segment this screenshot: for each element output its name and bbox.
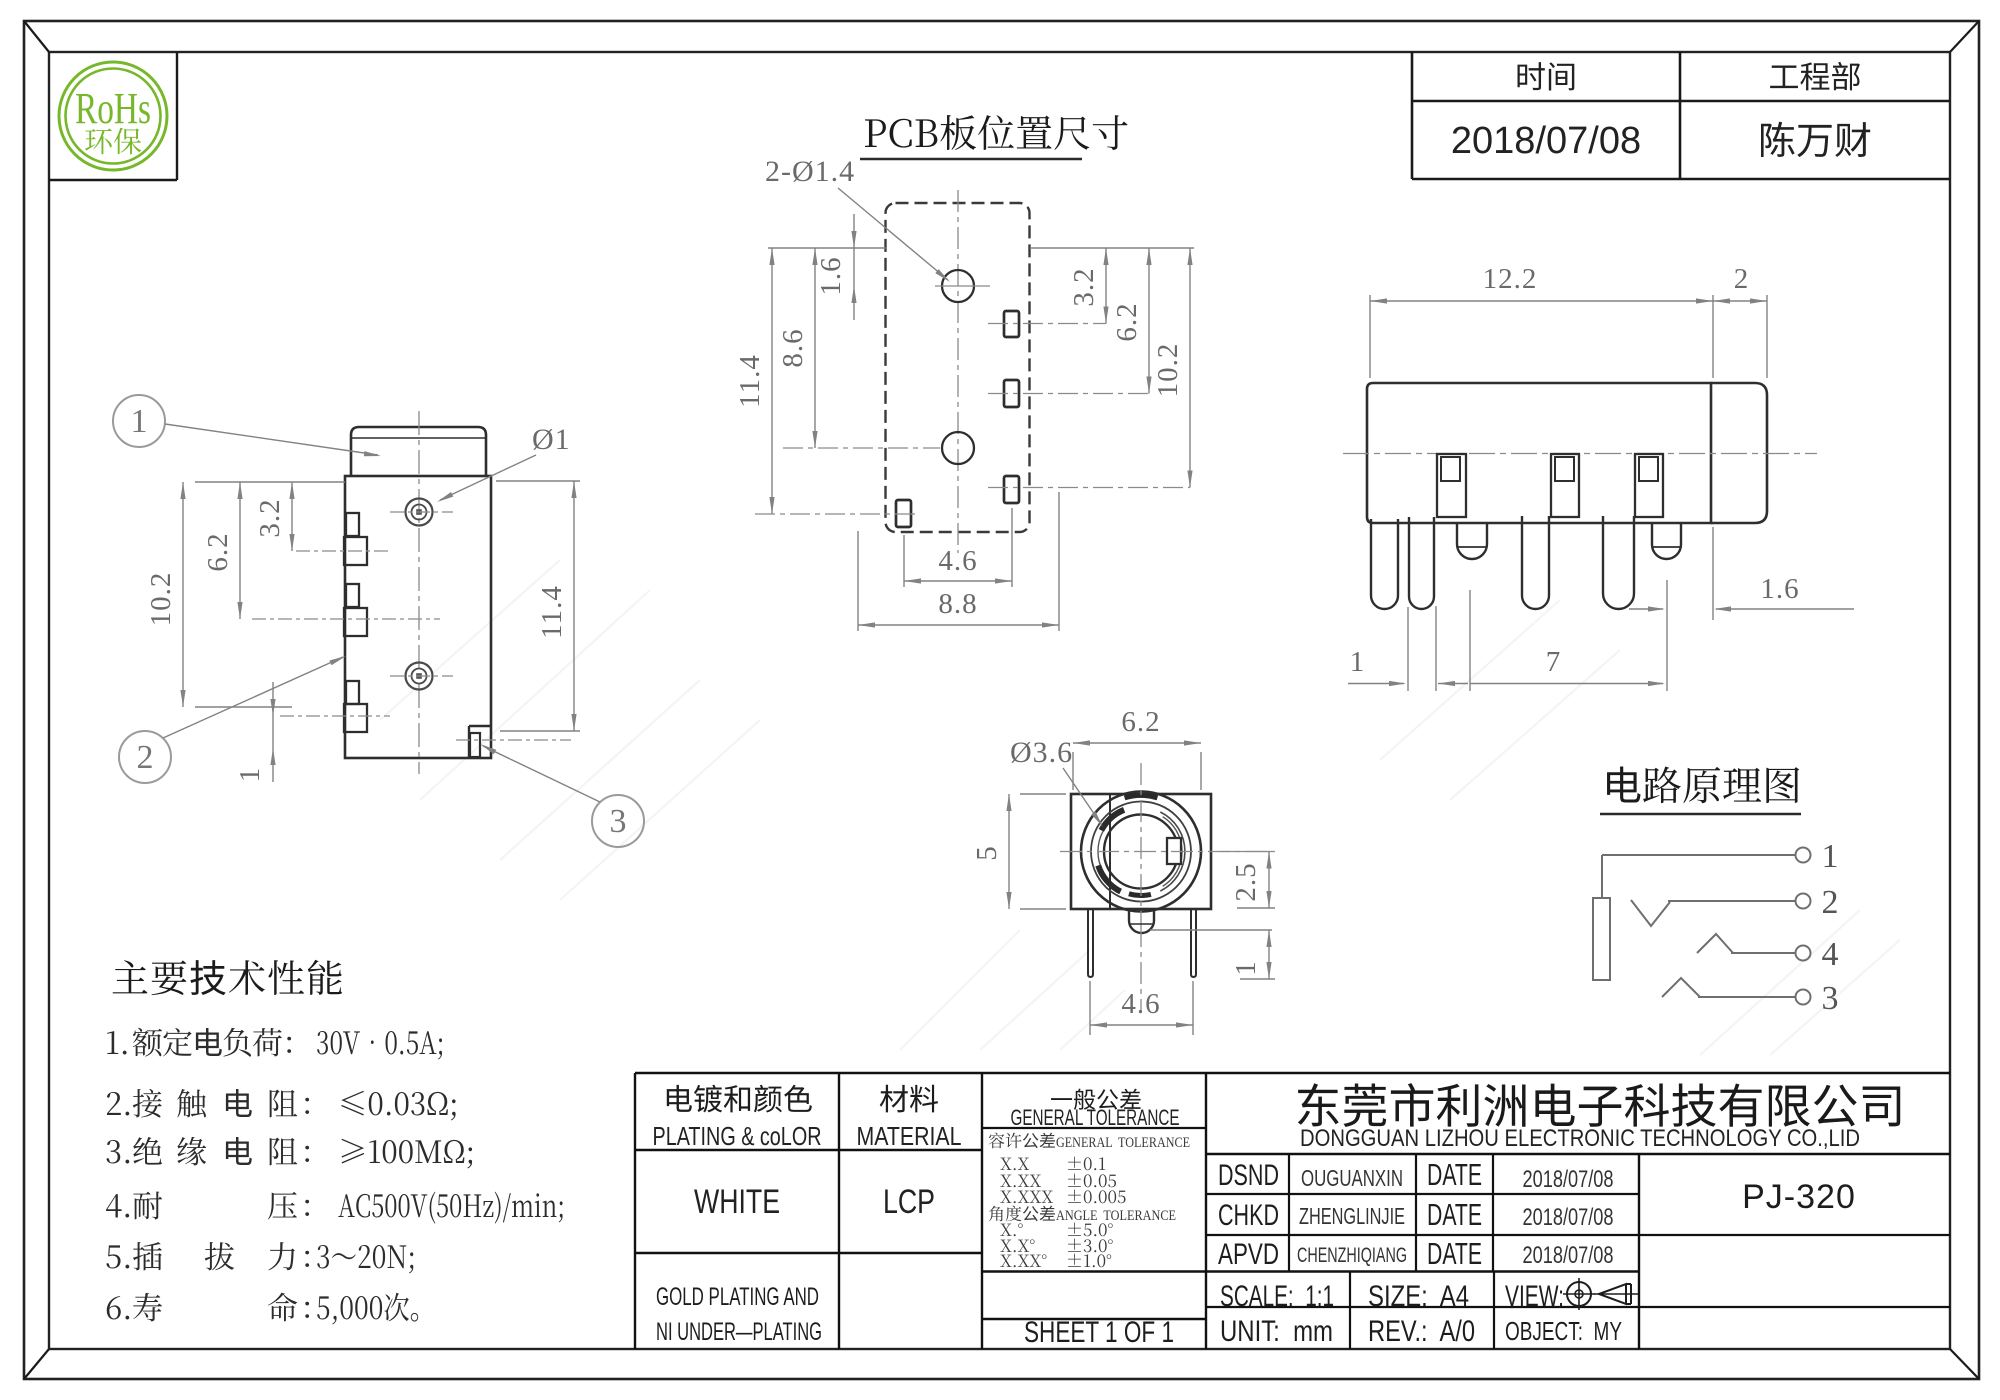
svg-text:2018/07/08: 2018/07/08 <box>1451 120 1641 162</box>
svg-text:Ø1: Ø1 <box>532 423 571 456</box>
svg-text:MATERIAL: MATERIAL <box>857 1121 962 1151</box>
svg-text:10.2: 10.2 <box>1152 343 1184 398</box>
svg-text:3: 3 <box>610 803 627 840</box>
svg-text:10.2: 10.2 <box>145 572 177 627</box>
svg-text:APVD: APVD <box>1218 1238 1279 1271</box>
svg-text:GENERAL TOLERANCE: GENERAL TOLERANCE <box>1056 1135 1190 1151</box>
svg-text:3.2: 3.2 <box>254 498 286 537</box>
svg-text:11.4: 11.4 <box>734 354 766 408</box>
svg-text:1: 1 <box>1350 646 1365 678</box>
svg-text:1: 1 <box>1230 960 1262 976</box>
svg-text:1: 1 <box>1822 838 1839 875</box>
svg-text:GOLD PLATING AND: GOLD PLATING AND <box>656 1283 819 1311</box>
svg-text:SCALE: 1:1: SCALE: 1:1 <box>1220 1280 1334 1313</box>
svg-text:DATE: DATE <box>1427 1157 1482 1192</box>
svg-text:CHKD: CHKD <box>1218 1199 1279 1232</box>
svg-text:7: 7 <box>1546 646 1561 678</box>
svg-text:3.2: 3.2 <box>1068 267 1100 306</box>
svg-text:1.6: 1.6 <box>1760 573 1799 605</box>
svg-text:NI UNDER—PLATING: NI UNDER—PLATING <box>656 1318 822 1346</box>
svg-text:ANGLE TOLERANCE: ANGLE TOLERANCE <box>1056 1208 1176 1224</box>
svg-text:12.2: 12.2 <box>1483 263 1538 295</box>
svg-text:PLATING & coLOR: PLATING & coLOR <box>653 1121 822 1151</box>
svg-text:8.6: 8.6 <box>777 328 809 367</box>
svg-text:1: 1 <box>131 403 148 440</box>
svg-text:8.8: 8.8 <box>938 588 977 620</box>
svg-text:6.2: 6.2 <box>202 532 234 571</box>
svg-text:2-Ø1.4: 2-Ø1.4 <box>765 155 855 188</box>
svg-text:2: 2 <box>1734 263 1749 295</box>
svg-text:GENERAL TOLERANCE: GENERAL TOLERANCE <box>1011 1105 1180 1130</box>
svg-text:SHEET 1 OF 1: SHEET 1 OF 1 <box>1024 1316 1174 1349</box>
svg-text:11.4: 11.4 <box>536 585 568 639</box>
svg-text:OBJECT: MY: OBJECT: MY <box>1505 1316 1622 1346</box>
svg-text:WHITE: WHITE <box>694 1183 780 1221</box>
svg-text:RoHs: RoHs <box>75 84 151 133</box>
svg-text:2.5: 2.5 <box>1230 862 1262 901</box>
svg-text:4.6: 4.6 <box>1121 988 1160 1020</box>
svg-text:4.6: 4.6 <box>938 545 977 577</box>
svg-text:DATE: DATE <box>1427 1197 1482 1232</box>
svg-text:REV.: A/0: REV.: A/0 <box>1368 1315 1475 1348</box>
svg-text:2018/07/08: 2018/07/08 <box>1523 1242 1614 1269</box>
svg-text:ZHENGLINJIE: ZHENGLINJIE <box>1299 1203 1405 1229</box>
svg-text:DSND: DSND <box>1218 1159 1279 1192</box>
svg-text:2: 2 <box>1822 884 1839 921</box>
svg-text:6.2: 6.2 <box>1111 302 1143 341</box>
svg-text:4: 4 <box>1822 936 1839 973</box>
svg-text:DATE: DATE <box>1427 1236 1482 1271</box>
svg-text:Ø3.6: Ø3.6 <box>1010 736 1073 769</box>
svg-text:SIZE: A4: SIZE: A4 <box>1368 1280 1469 1313</box>
svg-text:DONGGUAN LIZHOU ELECTRONIC TEC: DONGGUAN LIZHOU ELECTRONIC TECHNOLOGY CO… <box>1300 1125 1860 1152</box>
svg-text:PJ-320: PJ-320 <box>1742 1178 1856 1216</box>
svg-text:VIEW:: VIEW: <box>1505 1280 1564 1313</box>
svg-text:5: 5 <box>971 845 1003 861</box>
svg-text:2018/07/08: 2018/07/08 <box>1523 1166 1614 1193</box>
svg-text:2: 2 <box>137 739 154 776</box>
svg-text:LCP: LCP <box>883 1183 935 1221</box>
svg-text:UNIT: mm: UNIT: mm <box>1220 1315 1333 1348</box>
svg-text:OUGUANXIN: OUGUANXIN <box>1301 1165 1403 1191</box>
svg-text:3: 3 <box>1822 980 1839 1017</box>
svg-text:CHENZHIQIANG: CHENZHIQIANG <box>1297 1244 1407 1267</box>
svg-text:6.2: 6.2 <box>1121 706 1160 738</box>
svg-text:1: 1 <box>234 768 266 783</box>
svg-text:1.6: 1.6 <box>815 256 847 295</box>
svg-text:2018/07/08: 2018/07/08 <box>1523 1204 1614 1231</box>
